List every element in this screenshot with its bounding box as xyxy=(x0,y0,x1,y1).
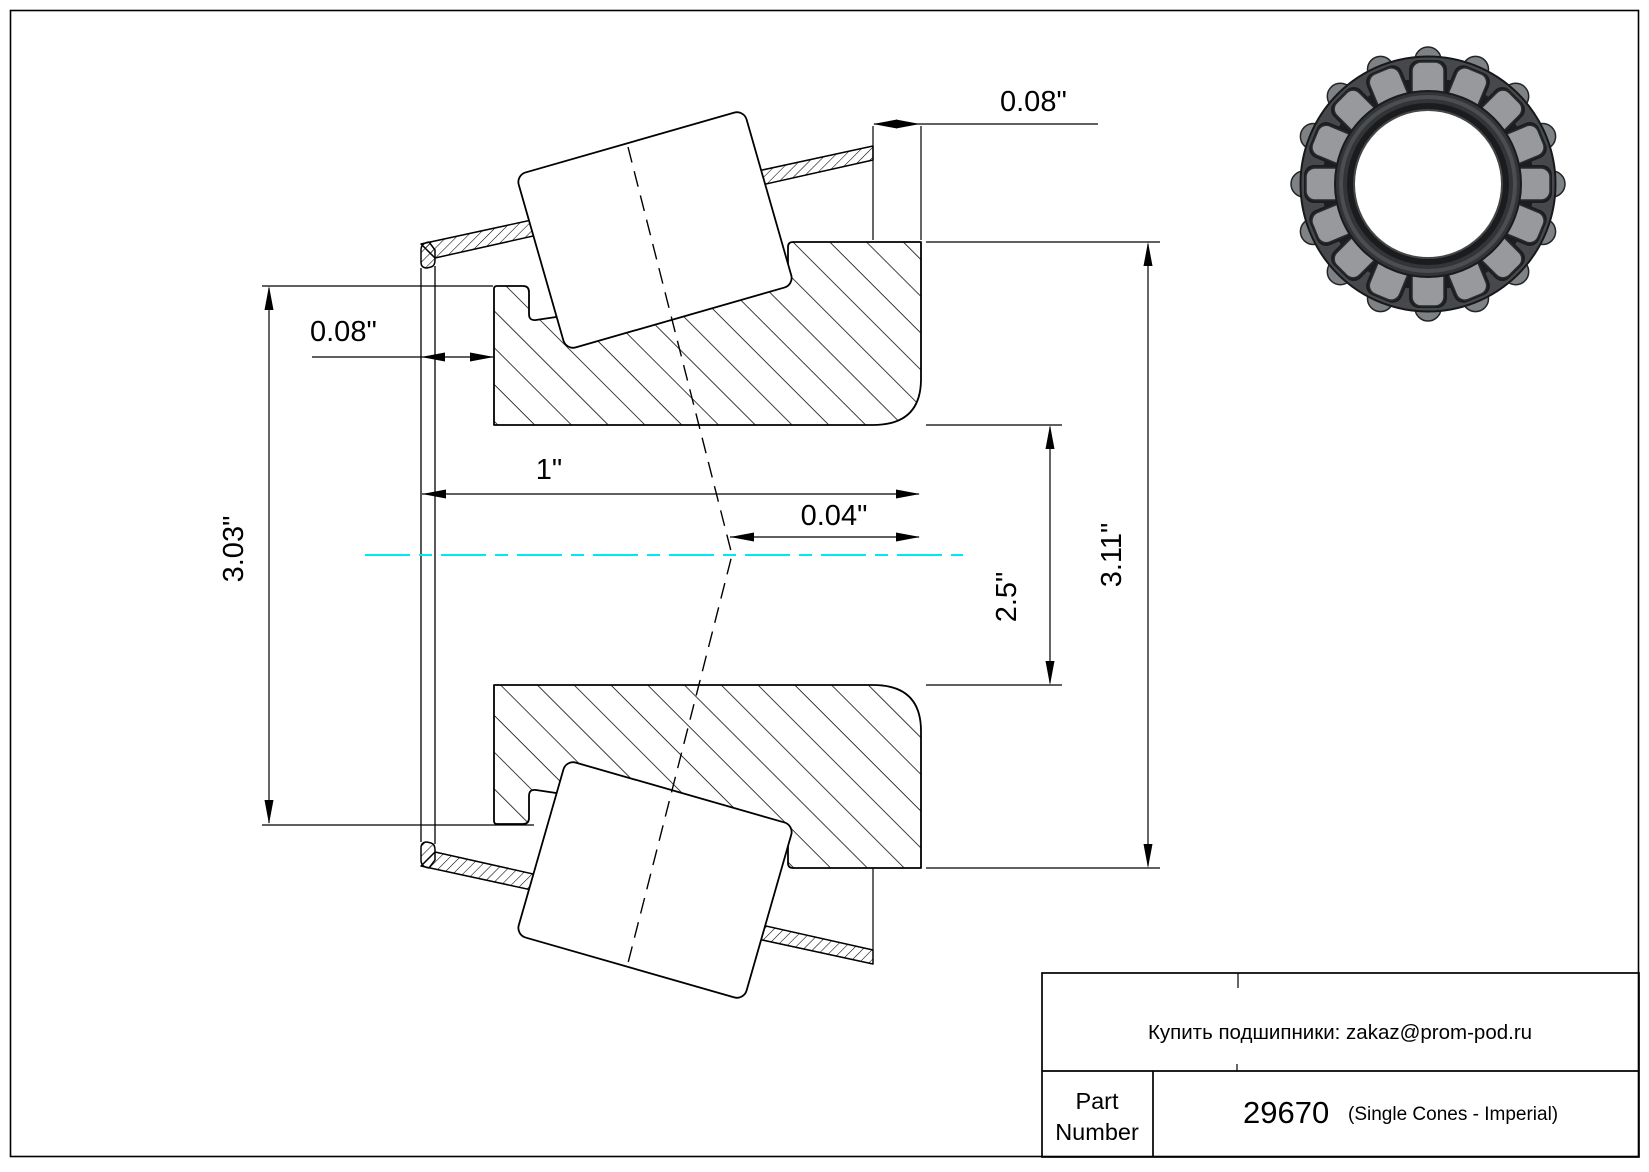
dim-bore-label: 2.5" xyxy=(991,572,1023,623)
drawing-sheet: 3.03" 0.08" 1" 0.04" xyxy=(0,0,1649,1167)
dim-width: 1" xyxy=(422,454,920,499)
dim-load-center: 0.04" xyxy=(730,500,920,542)
title-block: Купить подшипники: zakaz@prom-pod.ru Par… xyxy=(1042,973,1639,1157)
dim-bore: 2.5" xyxy=(926,425,1062,685)
supplier-note: Купить подшипники: zakaz@prom-pod.ru xyxy=(1148,1021,1532,1044)
bearing-photo xyxy=(1291,47,1565,321)
dim-load-center-label: 0.04" xyxy=(801,500,868,532)
dim-rib-od-label: 3.03" xyxy=(218,516,250,583)
bearing-bore-hole xyxy=(1354,110,1502,258)
dim-rib-gap-label: 0.08" xyxy=(310,316,377,348)
dim-back-gap-label: 0.08" xyxy=(1000,86,1067,118)
dim-back-gap: 0.08" xyxy=(873,86,1098,240)
dim-rib-gap: 0.08" xyxy=(310,316,494,362)
part-number-value: 29670 xyxy=(1243,1095,1329,1130)
part-series-value: (Single Cones - Imperial) xyxy=(1348,1104,1558,1125)
part-label-line1: Part xyxy=(1075,1088,1119,1114)
dim-width-label: 1" xyxy=(536,454,562,486)
dim-backing-od-label: 3.11" xyxy=(1096,523,1128,588)
part-label-line2: Number xyxy=(1055,1119,1139,1145)
